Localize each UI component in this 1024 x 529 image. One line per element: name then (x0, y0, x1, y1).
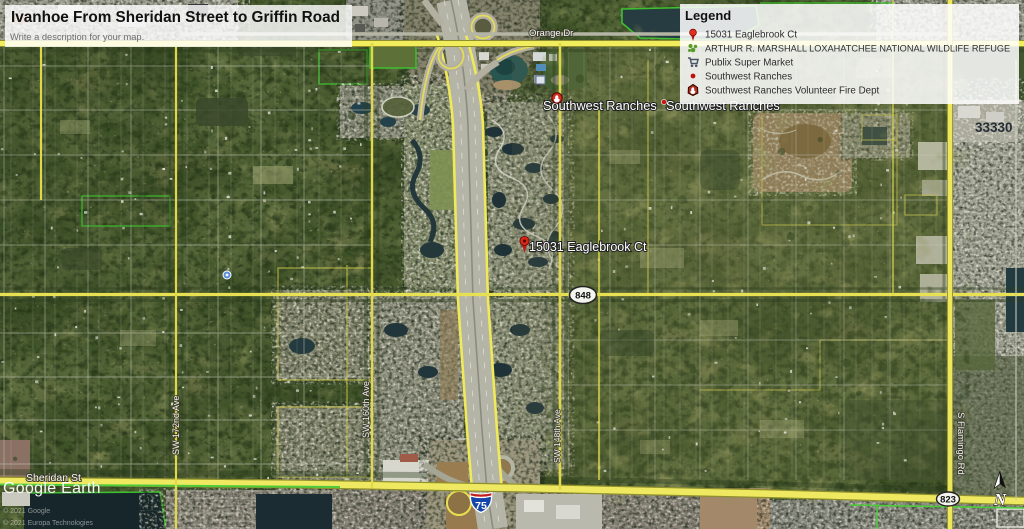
svg-text:15031 Eaglebrook Ct: 15031 Eaglebrook Ct (529, 240, 647, 254)
svg-text:Publix Super Market: Publix Super Market (705, 58, 793, 69)
svg-text:15031 Eaglebrook Ct: 15031 Eaglebrook Ct (705, 30, 797, 41)
svg-text:ARTHUR R. MARSHALL LOXAHATCHEE: ARTHUR R. MARSHALL LOXAHATCHEE NATIONAL … (705, 44, 1010, 54)
svg-text:Google Earth: Google Earth (3, 480, 101, 497)
svg-text:Southwest Ranches: Southwest Ranches (705, 72, 792, 83)
svg-text:© 2021 Europa Technologies: © 2021 Europa Technologies (3, 519, 93, 527)
svg-text:Southwest Ranches Volunteer Fi: Southwest Ranches Volunteer Fire Dept (705, 86, 880, 97)
svg-text:SW 148th Ave: SW 148th Ave (552, 409, 562, 463)
svg-text:75: 75 (475, 500, 487, 512)
svg-text:33330: 33330 (975, 120, 1013, 135)
svg-text:SW 160th Ave: SW 160th Ave (361, 381, 371, 438)
svg-text:823: 823 (940, 495, 956, 506)
svg-text:© 2021 Google: © 2021 Google (3, 507, 50, 515)
svg-text:Orange Dr: Orange Dr (529, 28, 573, 39)
svg-text:N: N (993, 490, 1007, 509)
svg-text:848: 848 (575, 291, 591, 302)
svg-text:S Flamingo Rd: S Flamingo Rd (955, 412, 966, 475)
svg-text:SW 172nd Ave: SW 172nd Ave (171, 396, 181, 455)
